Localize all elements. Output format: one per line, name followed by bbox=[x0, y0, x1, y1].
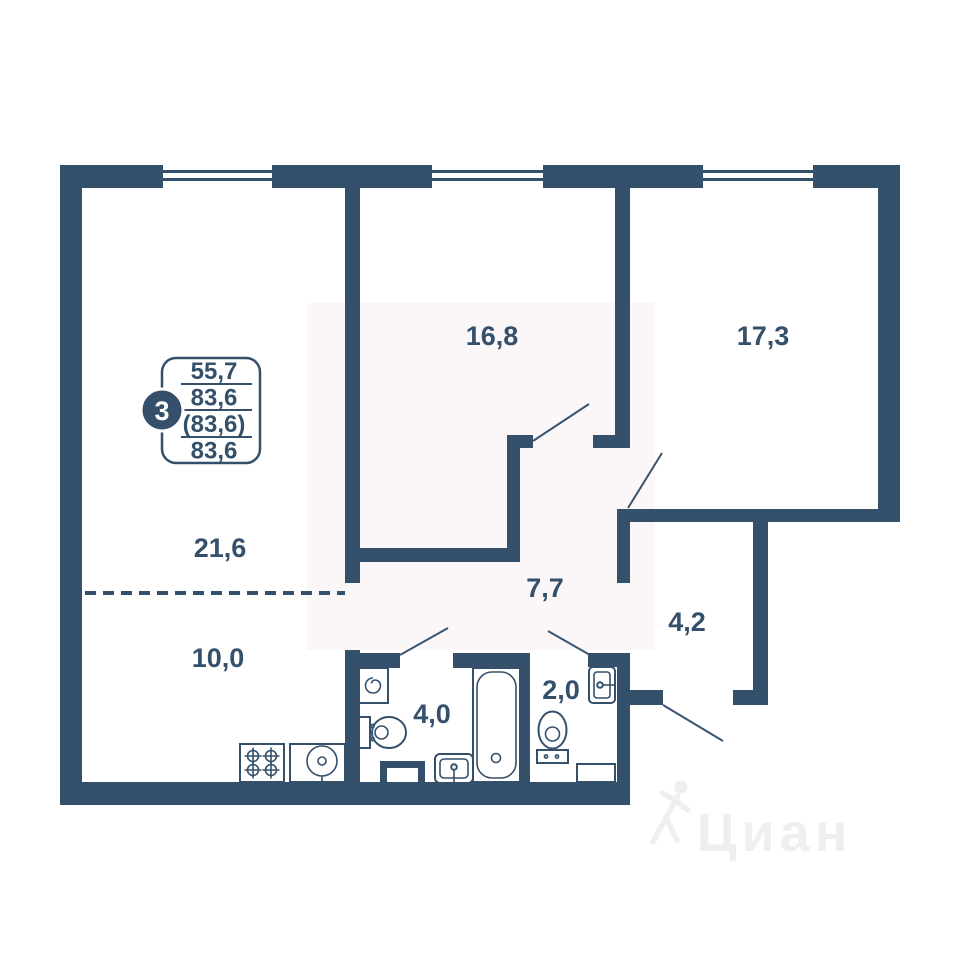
window-frame-line bbox=[432, 178, 543, 181]
bathtub bbox=[473, 668, 520, 782]
room-label-kitchen: 10,0 bbox=[192, 643, 245, 673]
vent-shaft-wc bbox=[577, 764, 615, 782]
toilet-wc bbox=[537, 712, 568, 764]
window-frame-line bbox=[163, 178, 272, 181]
kitchen-sink bbox=[290, 744, 345, 782]
room-label-wc: 2,0 bbox=[542, 675, 580, 705]
toilet-bathroom bbox=[359, 717, 406, 748]
window-frame-line bbox=[703, 178, 813, 181]
windows bbox=[163, 165, 813, 188]
wall-bedroom1-side bbox=[507, 437, 520, 562]
window-frame-line bbox=[703, 170, 813, 173]
washing-machine bbox=[359, 668, 388, 703]
wall-bedroom1-bedroom2 bbox=[615, 188, 630, 448]
bathroom-sink bbox=[435, 754, 473, 783]
wall-bedroom1-bottom bbox=[358, 548, 520, 562]
wall-wc-top bbox=[588, 653, 617, 667]
room-label-corridor: 4,2 bbox=[668, 607, 706, 637]
wall-bathtub-top bbox=[453, 653, 530, 668]
window-glass bbox=[432, 165, 543, 188]
badge-area-final: 83,6 bbox=[191, 438, 238, 465]
rooms-count-number: 3 bbox=[154, 396, 169, 426]
wc-sink bbox=[589, 667, 615, 703]
wall-exterior-left bbox=[60, 165, 82, 805]
badge-area-living: 55,7 bbox=[191, 358, 238, 385]
wall-entry-jamb-right bbox=[733, 690, 768, 705]
window-living bbox=[163, 165, 272, 188]
window-bedroom1 bbox=[432, 165, 543, 188]
window-frame-line bbox=[163, 170, 272, 173]
window-bedroom2 bbox=[703, 165, 813, 188]
room-label-bedroom1: 16,8 bbox=[466, 321, 519, 351]
wall-hallway-corridor bbox=[617, 509, 630, 583]
room-label-living: 21,6 bbox=[194, 533, 247, 563]
wall-bathroom-left bbox=[345, 650, 360, 782]
wall-exterior-bottom bbox=[60, 782, 630, 805]
watermark-brand-text: Циан bbox=[697, 803, 852, 863]
wall-bathroom-top bbox=[358, 653, 400, 668]
vent-shaft-bathroom bbox=[380, 761, 425, 782]
wall-bedroom1-door-jamb-left bbox=[507, 435, 533, 448]
floor-plan-canvas: 21,6 10,0 16,8 17,3 7,7 4,2 4,0 2,0 55,7… bbox=[0, 0, 960, 960]
badge-area-paren: (83,6) bbox=[183, 411, 246, 438]
window-glass bbox=[163, 165, 272, 188]
window-glass bbox=[703, 165, 813, 188]
floor-plan-svg: 21,6 10,0 16,8 17,3 7,7 4,2 4,0 2,0 55,7… bbox=[0, 0, 960, 960]
wall-wc-right bbox=[617, 653, 630, 782]
room-label-bedroom2: 17,3 bbox=[737, 321, 790, 351]
wall-entry-jamb-left bbox=[630, 690, 663, 705]
wall-exterior-right bbox=[878, 165, 900, 522]
stove bbox=[240, 744, 284, 782]
badge-area-total: 83,6 bbox=[191, 385, 238, 412]
wall-corridor-right bbox=[753, 522, 768, 705]
room-label-hallway: 7,7 bbox=[526, 573, 564, 603]
room-label-bathroom: 4,0 bbox=[413, 699, 451, 729]
wall-living-bedroom1 bbox=[345, 188, 360, 583]
window-frame-line bbox=[432, 170, 543, 173]
wall-bedroom2-bottom bbox=[617, 509, 900, 522]
wall-bathroom-wc bbox=[520, 653, 530, 782]
